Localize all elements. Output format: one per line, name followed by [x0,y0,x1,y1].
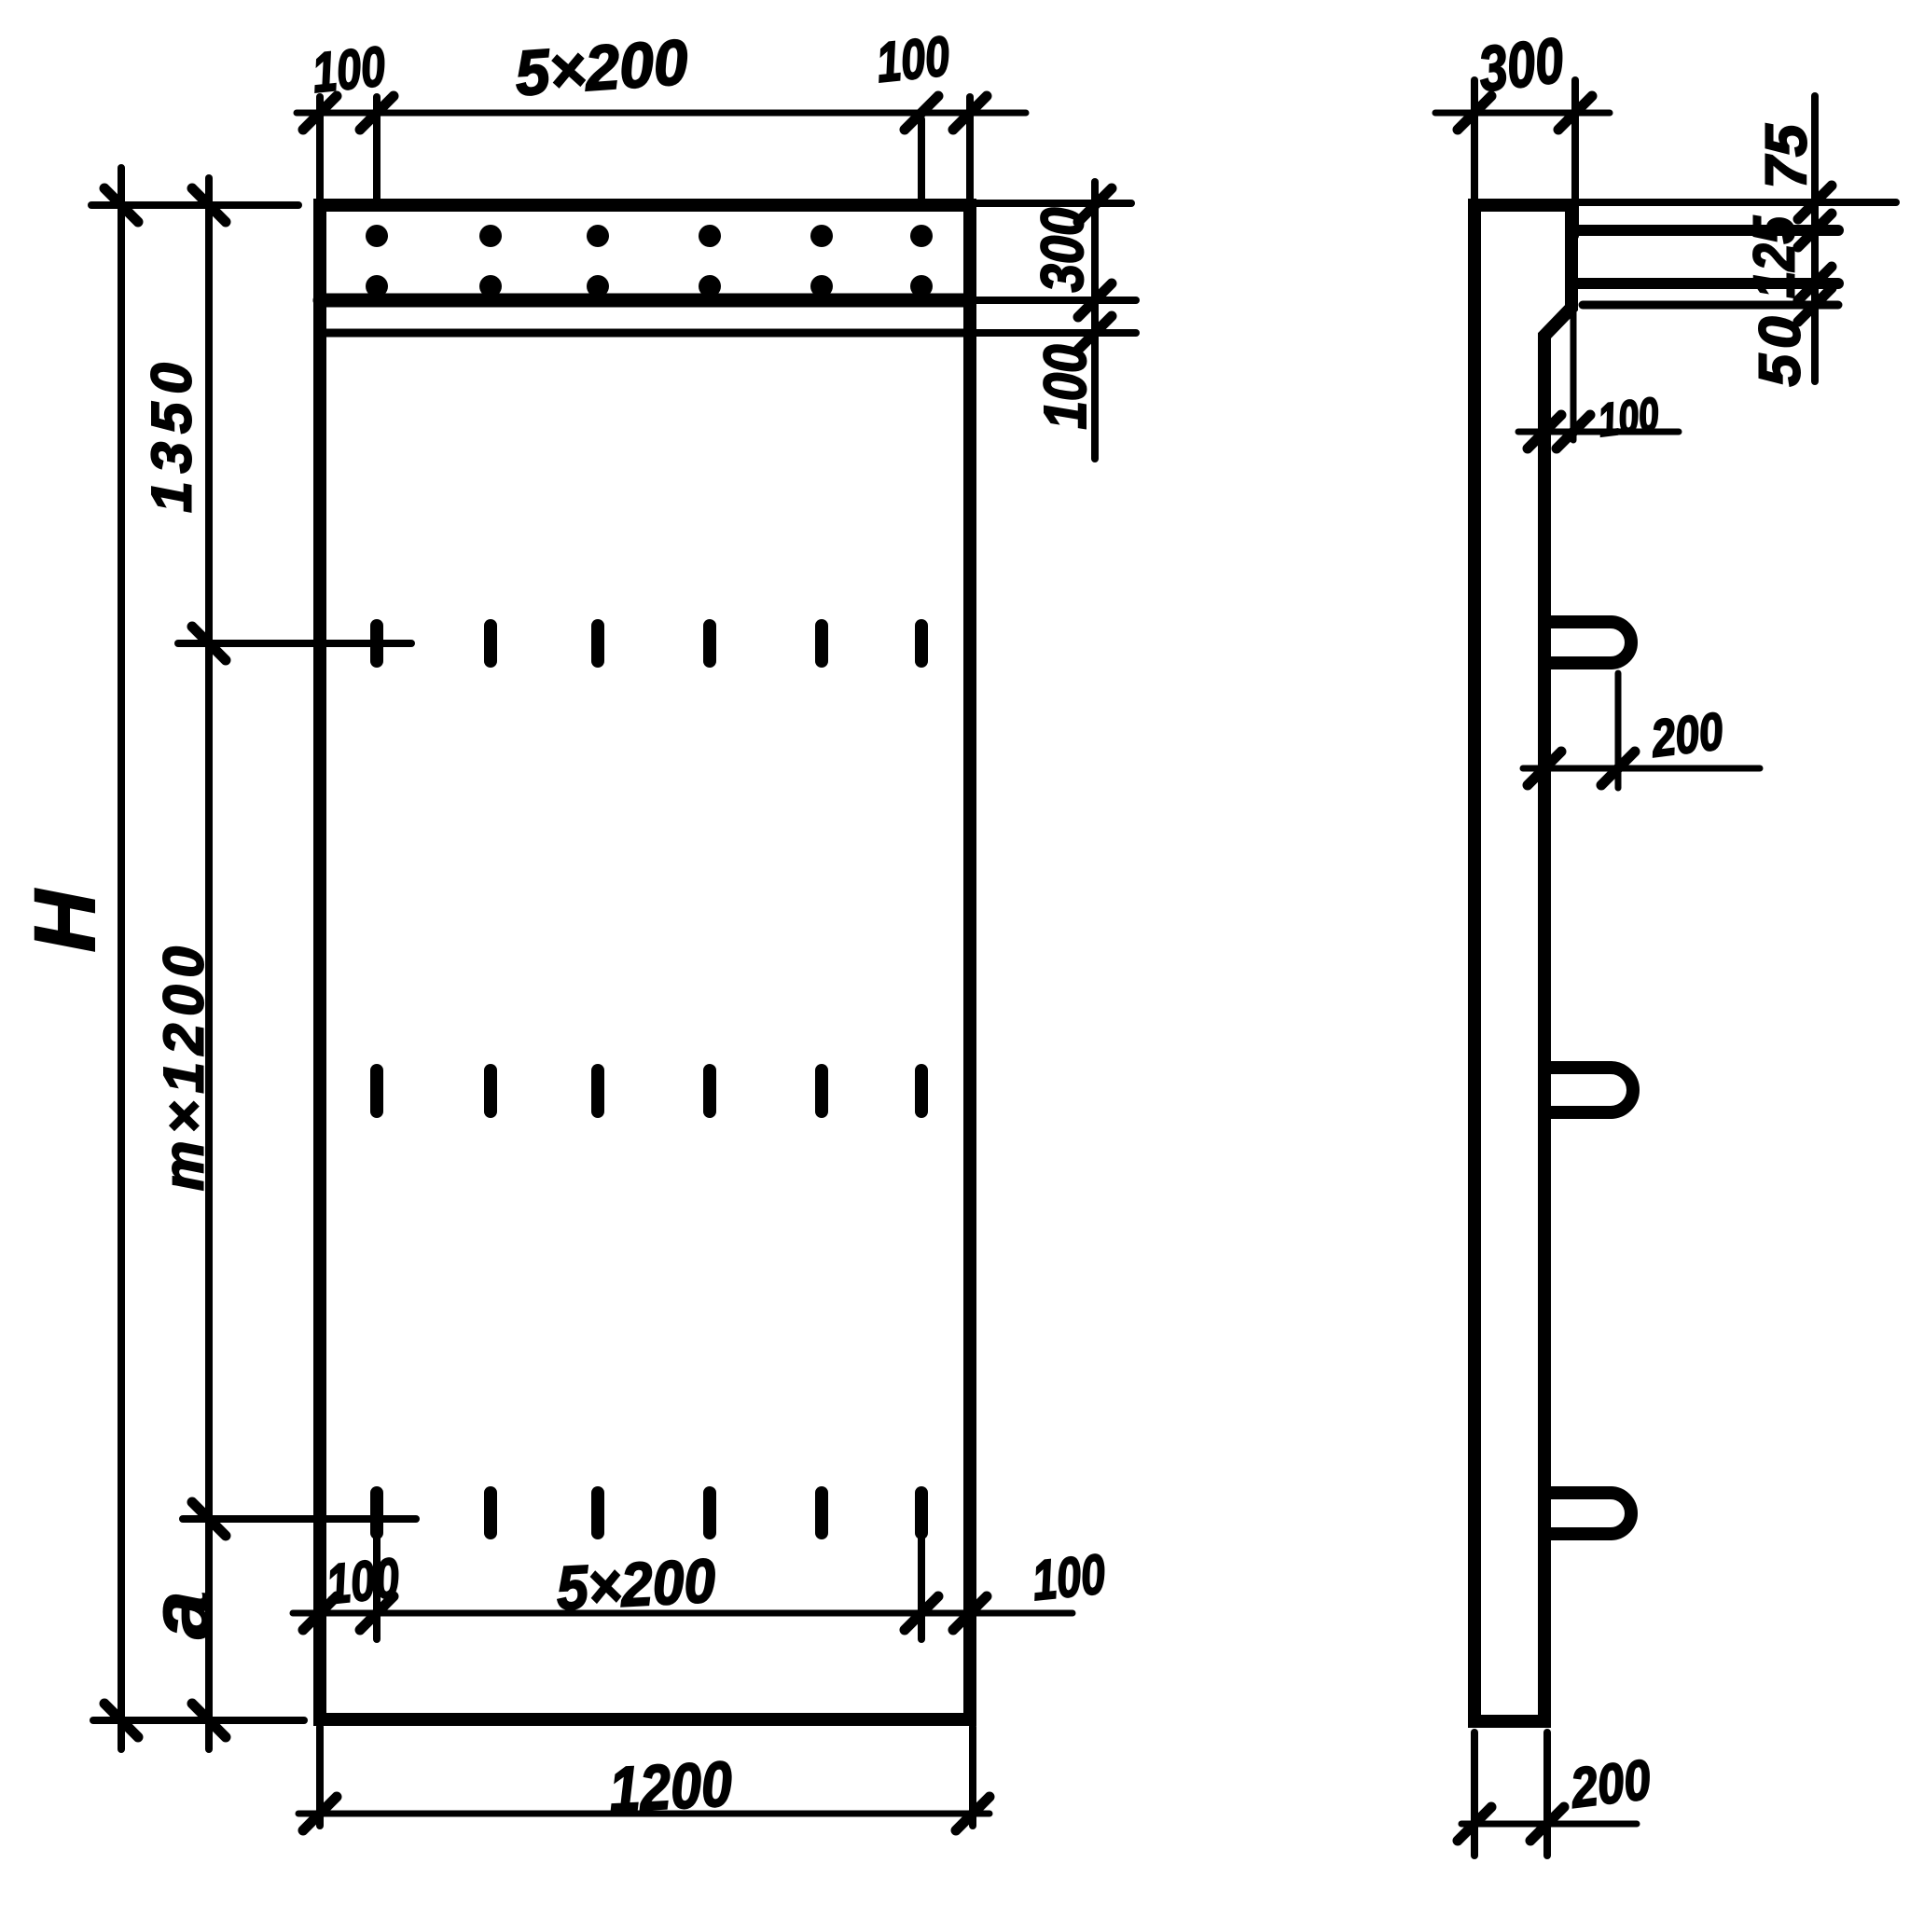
svg-text:100: 100 [1030,1543,1109,1613]
svg-text:100: 100 [324,1547,403,1617]
svg-text:1350: 1350 [141,354,203,512]
svg-text:100: 100 [874,25,953,95]
svg-text:300: 300 [1474,25,1567,106]
svg-text:5×200: 5×200 [555,1547,717,1623]
svg-text:200: 200 [1567,1748,1654,1820]
svg-text:m×1200: m×1200 [153,939,215,1191]
svg-text:200: 200 [1647,701,1726,767]
svg-text:5×200: 5×200 [513,27,690,110]
svg-text:300: 300 [1029,208,1096,293]
svg-text:50: 50 [1749,311,1813,387]
svg-text:75: 75 [1755,123,1820,188]
svg-text:100: 100 [310,35,389,105]
svg-text:H: H [18,888,113,952]
svg-text:100: 100 [1595,387,1662,447]
svg-text:a: a [133,1591,228,1638]
svg-text:1200: 1200 [607,1747,733,1826]
svg-text:100: 100 [1031,345,1099,430]
svg-text:125: 125 [1743,215,1807,298]
